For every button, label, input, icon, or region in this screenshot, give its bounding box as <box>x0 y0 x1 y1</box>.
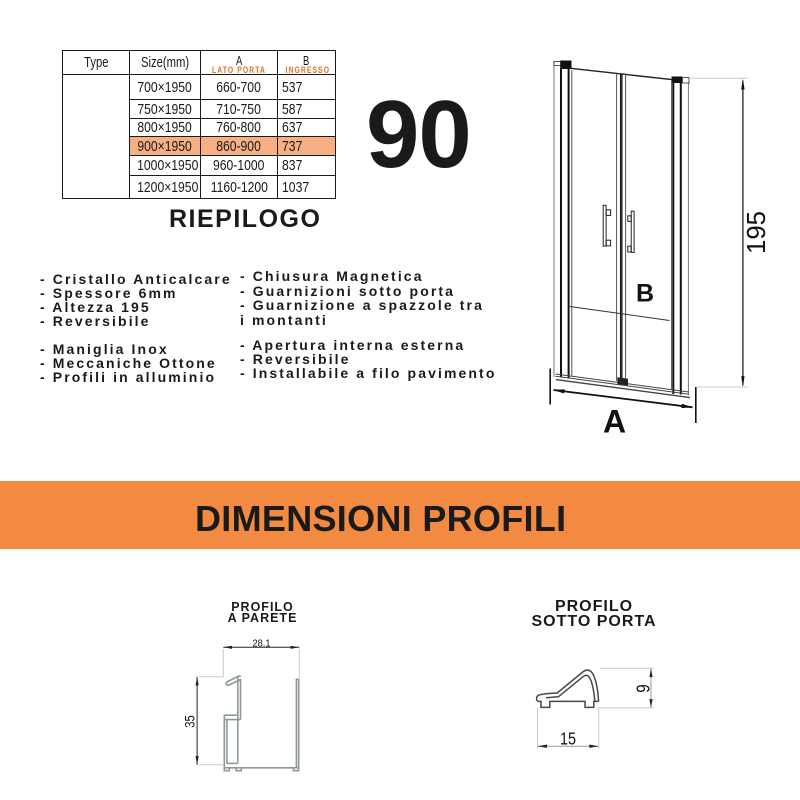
svg-text:35: 35 <box>183 715 198 728</box>
svg-text:195: 195 <box>741 211 771 254</box>
svg-text:B: B <box>636 280 654 308</box>
svg-text:9: 9 <box>634 684 654 693</box>
svg-text:15: 15 <box>560 729 576 749</box>
svg-text:A: A <box>603 404 626 440</box>
svg-text:28.1: 28.1 <box>253 639 271 650</box>
